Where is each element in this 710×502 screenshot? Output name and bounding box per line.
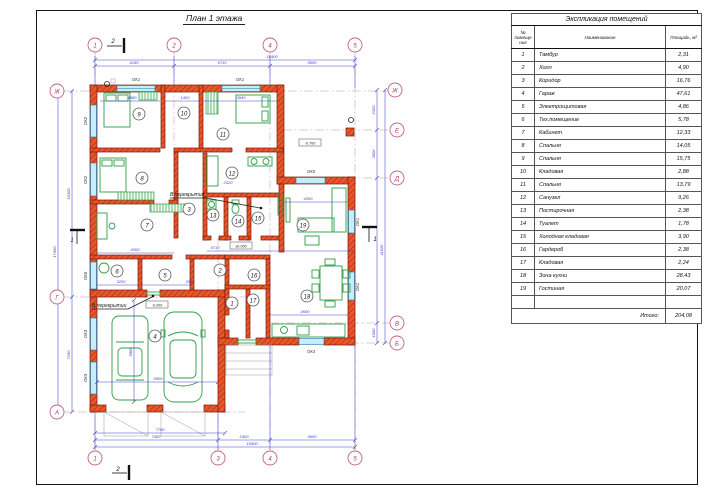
room-num: 17: [512, 257, 535, 270]
desk: [97, 213, 107, 239]
dim-label: 3940: [237, 95, 247, 100]
room-number: 1: [230, 302, 233, 308]
room-area: 2,24: [666, 257, 702, 270]
room-name: Постирочная: [535, 205, 666, 218]
entrance-porch: [226, 345, 272, 375]
room-num: 8: [512, 140, 535, 153]
dim-label: 11620: [379, 244, 384, 256]
room-area: 2,38: [666, 244, 702, 257]
dim-label: 4300: [304, 196, 314, 201]
room-name: Кабинет: [535, 127, 666, 140]
dim-label: 1400: [181, 95, 191, 100]
car: [112, 316, 148, 400]
table-row: 16 Гардероб 2,38: [512, 244, 702, 257]
axis-label: В: [395, 322, 399, 328]
room-name: Электрощитовая: [535, 101, 666, 114]
total-row: Итого: 204,08: [512, 309, 702, 324]
table-row: 17 Кладовая 2,24: [512, 257, 702, 270]
boiler: [99, 263, 109, 273]
column-mark: [349, 118, 354, 123]
room-num: 16: [512, 244, 535, 257]
room-num: 5: [512, 101, 535, 114]
dim-label: 15400: [266, 54, 278, 59]
room-name: Спальня: [535, 153, 666, 166]
room-name: Кладовая: [535, 166, 666, 179]
window-mark: ОК3: [83, 329, 88, 338]
table-row: 10 Кладовая 2,88: [512, 166, 702, 179]
table-row: 2 Холл 4,90: [512, 62, 702, 75]
room-area: 12,33: [666, 127, 702, 140]
window-mark: ОК1: [236, 77, 244, 82]
room-num: 19: [512, 283, 535, 296]
svg-text:1: 1: [70, 238, 73, 244]
axis-label: Б: [395, 342, 399, 348]
room-area: 5,78: [666, 114, 702, 127]
room-num: 13: [512, 205, 535, 218]
dim-label: 2550: [185, 279, 196, 284]
room-num: 7: [512, 127, 535, 140]
room-num: 10: [512, 166, 535, 179]
room-number: 10: [181, 112, 188, 118]
dim-label: 4300: [131, 247, 141, 252]
room-area: 15,75: [666, 153, 702, 166]
room-num: 9: [512, 153, 535, 166]
table-row: 18 Зона кухни 28,43: [512, 270, 702, 283]
axis-label: 2: [171, 44, 176, 50]
room-number: 16: [251, 274, 258, 280]
room-schedule-table: Экспликация помещений № помещения Наимен…: [511, 13, 702, 324]
room-num: 6: [512, 114, 535, 127]
room-area: 47,61: [666, 88, 702, 101]
axis-label: 1: [93, 44, 96, 50]
room-num: 18: [512, 270, 535, 283]
section-mark: 2: [107, 38, 124, 53]
axis-label: Ж: [53, 90, 60, 96]
wardrobe: [118, 192, 154, 200]
table-row: 9 Спальня 15,75: [512, 153, 702, 166]
room-name: Спальня: [535, 179, 666, 192]
level-mark: -0.200: [152, 303, 163, 307]
dining-table: [320, 266, 342, 300]
table-row: 4 Гараж 47,61: [512, 88, 702, 101]
room-number: 14: [235, 220, 242, 226]
room-area: 16,76: [666, 75, 702, 88]
axis-label: Ж: [391, 89, 398, 95]
empty-row: [512, 296, 702, 309]
table-row: 5 Электрощитовая 4,86: [512, 101, 702, 114]
dim-label: 6900: [154, 376, 164, 381]
dim-label: 2520: [223, 180, 234, 185]
dim-label: 2320: [371, 105, 376, 116]
room-number: 12: [229, 172, 236, 178]
dim-label: 17450: [52, 246, 57, 258]
grid-axes: [62, 52, 390, 451]
room-num: 11: [512, 179, 535, 192]
room-name: Тамбур: [535, 49, 666, 62]
svg-text:1: 1: [373, 237, 376, 243]
room-name: Коридор: [535, 75, 666, 88]
table-row: 8 Спальня 14,05: [512, 140, 702, 153]
dim-label: 7150: [66, 350, 71, 360]
wardrobe: [206, 92, 218, 114]
room-area: 4,90: [666, 62, 702, 75]
table-row: 3 Коридор 16,76: [512, 75, 702, 88]
dim-label: 7700: [156, 427, 166, 432]
section-mark: 2: [112, 465, 129, 480]
window-mark: ОК4: [307, 349, 316, 354]
window-mark: ОК2: [83, 116, 88, 125]
table-row: 15 Холодная кладовая 3,90: [512, 231, 702, 244]
room-num: 12: [512, 192, 535, 205]
dim-label: 7400: [152, 434, 162, 439]
bed: [104, 93, 130, 127]
stove: [297, 326, 309, 335]
room-area: 9,26: [666, 192, 702, 205]
svg-text:2: 2: [110, 39, 115, 45]
room-name: Гараж: [535, 88, 666, 101]
room-name: Санузел: [535, 192, 666, 205]
door-leaf: [147, 292, 160, 295]
dim-label: 4500: [301, 309, 311, 314]
bed: [100, 158, 126, 192]
axis-label: 1: [93, 457, 96, 463]
room-area: 4,86: [666, 101, 702, 114]
room-name: Туалет: [535, 218, 666, 231]
tv-stand: [286, 198, 290, 222]
room-area: 14,05: [666, 140, 702, 153]
section-mark: 1: [362, 227, 377, 243]
dim-label: 1000: [371, 328, 376, 338]
room-num: 4: [512, 88, 535, 101]
room-name: Зона кухни: [535, 270, 666, 283]
table-row: 1 Тамбур 2,31: [512, 49, 702, 62]
window-mark: ОК1: [355, 218, 360, 226]
room-num: 1: [512, 49, 535, 62]
room-number: 17: [250, 299, 257, 305]
room-num: 3: [512, 75, 535, 88]
dim-label: 4150: [130, 60, 140, 65]
room-number: 2: [217, 269, 222, 275]
note-ceiling: В перекрытии: [92, 303, 127, 309]
dim-label: 5710: [211, 245, 221, 250]
window-mark: ОК1: [355, 283, 360, 291]
room-num: 2: [512, 62, 535, 75]
dim-label: 3600: [371, 149, 376, 159]
shower: [206, 156, 218, 186]
dim-label: 15400: [246, 441, 258, 446]
window-mark: ОК3: [83, 373, 88, 382]
wardrobe: [139, 92, 157, 100]
room-num: 15: [512, 231, 535, 244]
col-header-name: Наименование: [535, 26, 666, 49]
table-row: 11 Спальня 13,79: [512, 179, 702, 192]
window-mark: ОК6: [83, 271, 88, 280]
window-mark: ОК1: [132, 77, 140, 82]
window-mark: ОК5: [307, 169, 316, 174]
dim-label: 5600: [308, 60, 318, 65]
room-number: 13: [210, 214, 217, 220]
table-title: Экспликация помещений: [512, 14, 702, 26]
room-name: Кладовая: [535, 257, 666, 270]
room-name: Гостиная: [535, 283, 666, 296]
dim-label: 3200: [117, 279, 127, 284]
table-row: 7 Кабинет 12,33: [512, 127, 702, 140]
room-number: 11: [220, 133, 226, 139]
room-number: 15: [255, 217, 262, 223]
vanity: [248, 157, 272, 166]
dim-label: 5985: [128, 347, 133, 357]
table-header-row: № помещения Наименование Площадь, м²: [512, 26, 702, 49]
col-header-area: Площадь, м²: [666, 26, 702, 49]
room-name: Тех.помещение: [535, 114, 666, 127]
window-mark: ОК2: [83, 175, 88, 184]
level-mark: ±0.000: [235, 244, 247, 248]
room-number: 19: [300, 224, 307, 230]
room-area: 2,88: [666, 166, 702, 179]
total-value: 204,08: [666, 309, 702, 324]
level-mark: -0.700: [305, 141, 316, 145]
room-number: 18: [304, 295, 311, 301]
room-name: Гардероб: [535, 244, 666, 257]
note-ceiling: В перекрытии: [170, 192, 205, 198]
room-area: 20,07: [666, 283, 702, 296]
dim-label: 10300: [66, 188, 71, 200]
table-row: 19 Гостиная 20,07: [512, 283, 702, 296]
table-row: 13 Постирочная 2,38: [512, 205, 702, 218]
dim-label: 4580: [128, 95, 138, 100]
room-area: 3,90: [666, 231, 702, 244]
room-num: 14: [512, 218, 535, 231]
wardrobe: [150, 204, 188, 212]
dim-label: 2400: [239, 434, 250, 439]
room-area: 13,79: [666, 179, 702, 192]
sink: [281, 327, 288, 334]
door-leaf: [238, 340, 256, 343]
dim-label: 5600: [308, 434, 318, 439]
room-area: 28,43: [666, 270, 702, 283]
room-name: Спальня: [535, 140, 666, 153]
svg-text:2: 2: [115, 467, 120, 473]
table-row: 6 Тех.помещение 5,78: [512, 114, 702, 127]
table-row: 12 Санузел 9,26: [512, 192, 702, 205]
drawing-sheet: План 1 этажа: [0, 0, 710, 502]
room-name: Холл: [535, 62, 666, 75]
col-header-number: № помещения: [512, 26, 535, 49]
axis-label: А: [54, 411, 59, 417]
table-row: 14 Туалет 1,78: [512, 218, 702, 231]
coffee-table: [305, 236, 319, 245]
dim-label: 5710: [218, 60, 228, 65]
room-name: Холодная кладовая: [535, 231, 666, 244]
axis-label: Д: [394, 177, 400, 183]
room-area: 2,38: [666, 205, 702, 218]
room-area: 2,31: [666, 49, 702, 62]
total-label: Итого:: [512, 309, 666, 324]
room-area: 1,78: [666, 218, 702, 231]
